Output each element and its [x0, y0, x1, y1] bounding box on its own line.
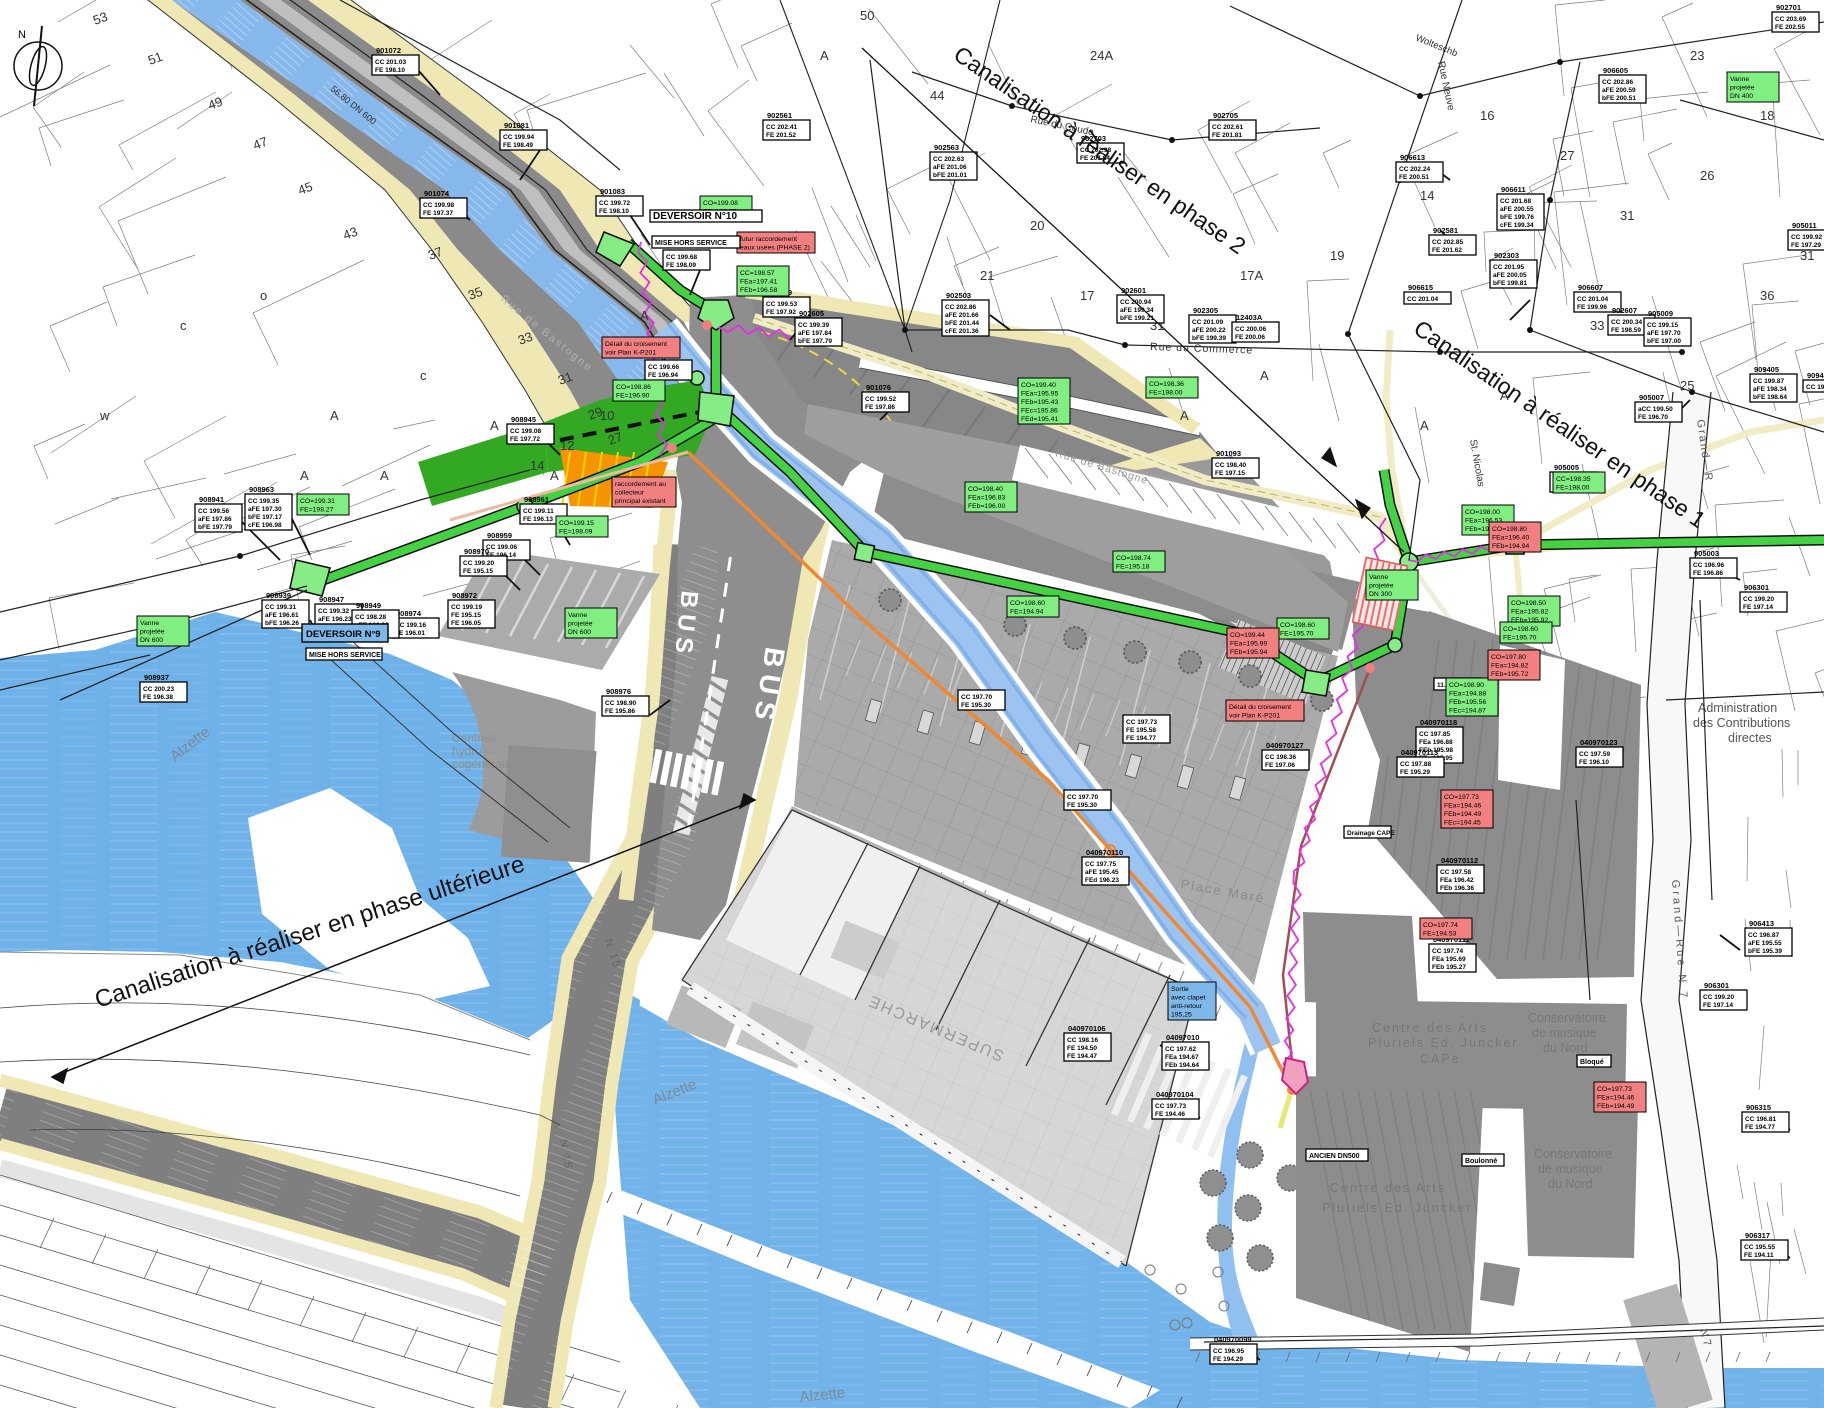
- svg-text:16: 16: [1480, 108, 1494, 123]
- svg-text:anti-retour: anti-retour: [1171, 1003, 1203, 1010]
- svg-text:CO=198.80: CO=198.80: [1492, 526, 1527, 533]
- svg-text:du Nord: du Nord: [1548, 1177, 1593, 1191]
- svg-text:905005: 905005: [1554, 463, 1579, 472]
- svg-text:FEb=196.00: FEb=196.00: [968, 503, 1005, 510]
- svg-text:bFE 195.39: bFE 195.39: [1748, 948, 1782, 955]
- svg-text:CC 199.92: CC 199.92: [1791, 234, 1822, 241]
- svg-text:Conservatoire: Conservatoire: [1534, 1147, 1612, 1161]
- svg-text:cFE 199.34: cFE 199.34: [1500, 222, 1534, 229]
- svg-text:CC 199.52: CC 199.52: [865, 396, 896, 403]
- svg-text:A: A: [490, 418, 499, 433]
- svg-text:040970123: 040970123: [1580, 738, 1618, 747]
- svg-text:50: 50: [860, 8, 874, 23]
- svg-text:FEb 195.27: FEb 195.27: [1432, 964, 1466, 971]
- svg-text:A: A: [380, 468, 389, 483]
- svg-text:CC 196.95: CC 196.95: [1213, 1348, 1244, 1355]
- svg-text:projetée: projetée: [1730, 85, 1755, 92]
- svg-text:CC 202.86: CC 202.86: [945, 304, 976, 311]
- svg-text:CO=198.90: CO=198.90: [1449, 682, 1484, 689]
- svg-text:906607: 906607: [1578, 283, 1603, 292]
- svg-text:CO=198.50: CO=198.50: [1511, 600, 1546, 607]
- svg-text:FEa=194.46: FEa=194.46: [1444, 803, 1481, 810]
- svg-text:FE=194.53: FE=194.53: [1423, 931, 1457, 938]
- svg-text:des Contributions: des Contributions: [1693, 716, 1790, 730]
- svg-text:CC 197.73: CC 197.73: [1126, 719, 1157, 726]
- svg-text:CC 199.87: CC 199.87: [1753, 378, 1784, 385]
- svg-text:908949: 908949: [356, 601, 381, 610]
- svg-text:CO=199.31: CO=199.31: [300, 498, 335, 505]
- svg-text:906301: 906301: [1704, 981, 1729, 990]
- svg-text:908963: 908963: [249, 485, 274, 494]
- svg-text:CC 199.72: CC 199.72: [599, 200, 630, 207]
- svg-text:908959: 908959: [487, 531, 512, 540]
- svg-text:bFE 200.51: bFE 200.51: [1602, 95, 1636, 102]
- svg-text:FEd=195.41: FEd=195.41: [1021, 416, 1058, 423]
- svg-text:FE 194.47: FE 194.47: [1067, 1053, 1097, 1060]
- svg-text:CO=198.60: CO=198.60: [1280, 622, 1315, 629]
- svg-text:906315: 906315: [1746, 1103, 1771, 1112]
- svg-text:aFE 195.55: aFE 195.55: [1748, 940, 1782, 947]
- svg-text:CC 195.55: CC 195.55: [1744, 1244, 1775, 1251]
- svg-text:Vanne: Vanne: [1369, 574, 1388, 581]
- svg-text:24A: 24A: [1090, 48, 1113, 63]
- svg-text:FE 202.55: FE 202.55: [1775, 24, 1805, 31]
- svg-text:bFE 199.81: bFE 199.81: [1493, 280, 1527, 287]
- svg-text:FE 194.77: FE 194.77: [1745, 1124, 1775, 1131]
- svg-text:avec clapet: avec clapet: [1171, 995, 1205, 1002]
- svg-text:902705: 902705: [1213, 111, 1238, 120]
- svg-text:CC 197.75: CC 197.75: [1085, 861, 1116, 868]
- svg-text:FE 197.37: FE 197.37: [423, 210, 453, 217]
- svg-text:04097010: 04097010: [1166, 1033, 1199, 1042]
- svg-text:FE 197.15: FE 197.15: [1215, 470, 1245, 477]
- svg-text:906611: 906611: [1501, 185, 1526, 194]
- svg-text:FE 201.81: FE 201.81: [1212, 132, 1242, 139]
- svg-text:FE 197.29: FE 197.29: [1791, 242, 1821, 249]
- svg-text:c: c: [420, 368, 427, 383]
- svg-text:17A: 17A: [1240, 268, 1263, 283]
- svg-text:FE 194.11: FE 194.11: [1744, 1252, 1774, 1259]
- svg-text:195,25: 195,25: [1171, 1012, 1192, 1019]
- svg-text:12: 12: [560, 438, 574, 453]
- svg-text:FEc=194.45: FEc=194.45: [1444, 820, 1481, 827]
- svg-text:27: 27: [1560, 148, 1574, 163]
- svg-text:CC 199.20: CC 199.20: [1743, 596, 1774, 603]
- svg-text:CC 201.95: CC 201.95: [1493, 264, 1524, 271]
- svg-text:aFE 197.86: aFE 197.86: [198, 516, 232, 523]
- svg-text:bFE 197.17: bFE 197.17: [248, 514, 282, 521]
- svg-text:908961: 908961: [524, 495, 549, 504]
- svg-text:CC 197.85: CC 197.85: [1419, 731, 1450, 738]
- svg-text:de musique: de musique: [1538, 1162, 1603, 1176]
- svg-text:FEb=194.49: FEb=194.49: [1444, 811, 1481, 818]
- svg-text:FE 195.86: FE 195.86: [605, 708, 635, 715]
- svg-text:14: 14: [530, 458, 544, 473]
- svg-text:FEb=195.72: FEb=195.72: [1491, 671, 1528, 678]
- svg-text:CC 199.98: CC 199.98: [423, 202, 454, 209]
- svg-text:cFE 196.98: cFE 196.98: [248, 522, 282, 529]
- svg-text:A: A: [1260, 368, 1269, 383]
- svg-text:901093: 901093: [1216, 449, 1241, 458]
- svg-text:CC 197.73: CC 197.73: [1155, 1103, 1186, 1110]
- svg-text:FE=195.70: FE=195.70: [1503, 635, 1537, 642]
- svg-text:040970118: 040970118: [1420, 718, 1457, 727]
- svg-text:901083: 901083: [600, 187, 625, 196]
- svg-text:906613: 906613: [1400, 153, 1425, 162]
- svg-text:bFE 201.01: bFE 201.01: [933, 172, 967, 179]
- svg-text:21: 21: [980, 268, 994, 283]
- svg-text:CC 199.56: CC 199.56: [198, 508, 229, 515]
- svg-text:FE=198.00: FE=198.00: [1556, 485, 1590, 492]
- svg-text:raccordement au: raccordement au: [615, 481, 666, 488]
- svg-text:FE 194.46: FE 194.46: [1155, 1111, 1185, 1118]
- svg-text:908937: 908937: [144, 673, 169, 682]
- svg-text:908972: 908972: [452, 591, 477, 600]
- svg-text:bFE 199.76: bFE 199.76: [1500, 214, 1534, 221]
- svg-text:FEa=195.95: FEa=195.95: [1021, 391, 1058, 398]
- svg-text:26: 26: [1700, 168, 1714, 183]
- svg-text:FE 200.51: FE 200.51: [1399, 174, 1429, 181]
- svg-text:908974: 908974: [396, 609, 422, 618]
- svg-text:FE 196.86: FE 196.86: [1693, 570, 1723, 577]
- svg-text:FEa=195.99: FEa=195.99: [1230, 641, 1267, 648]
- svg-text:CC 197.88: CC 197.88: [1400, 761, 1431, 768]
- svg-text:CO=199.40: CO=199.40: [1021, 382, 1056, 389]
- svg-text:aFE 200.55: aFE 200.55: [1500, 206, 1534, 213]
- svg-text:CC 199.20: CC 199.20: [1703, 994, 1734, 1001]
- svg-text:CC 197.59: CC 197.59: [1579, 751, 1610, 758]
- svg-text:23: 23: [1690, 48, 1704, 63]
- svg-text:908947: 908947: [319, 595, 344, 604]
- svg-text:908970: 908970: [464, 547, 489, 556]
- svg-text:909405: 909405: [1754, 365, 1779, 374]
- svg-text:voir Plan K-P201: voir Plan K-P201: [1229, 713, 1280, 720]
- svg-text:N: N: [18, 29, 26, 41]
- svg-text:FE 198.59: FE 198.59: [1611, 327, 1641, 334]
- svg-text:901081: 901081: [504, 121, 529, 130]
- svg-text:CO=197.73: CO=197.73: [1444, 794, 1479, 801]
- svg-text:aFE 196.23: aFE 196.23: [318, 616, 352, 623]
- svg-text:040970106: 040970106: [1068, 1024, 1106, 1033]
- svg-text:902701: 902701: [1776, 3, 1801, 12]
- svg-text:aFE 197.70: aFE 197.70: [1647, 330, 1681, 337]
- svg-text:FE 196.38: FE 196.38: [143, 694, 173, 701]
- svg-text:FEb 196.36: FEb 196.36: [1440, 885, 1474, 892]
- svg-text:CC 199.11: CC 199.11: [523, 508, 554, 515]
- svg-text:FE 199.96: FE 199.96: [1577, 304, 1607, 311]
- svg-text:908939: 908939: [266, 591, 291, 600]
- svg-text:CC 201.09: CC 201.09: [1192, 319, 1223, 326]
- svg-text:FEb=194.49: FEb=194.49: [1597, 1103, 1634, 1110]
- svg-text:Bloqué: Bloqué: [1580, 1059, 1604, 1066]
- svg-text:040970112: 040970112: [1441, 856, 1478, 865]
- svg-text:aFE 201.06: aFE 201.06: [933, 164, 967, 171]
- svg-text:FEc=195.86: FEc=195.86: [1021, 408, 1058, 415]
- svg-text:CC 199.15: CC 199.15: [1647, 322, 1678, 329]
- svg-text:CC 199.19: CC 199.19: [451, 604, 482, 611]
- svg-text:CAPe: CAPe: [1420, 1052, 1461, 1066]
- svg-text:FE 198.09: FE 198.09: [666, 262, 696, 269]
- svg-text:18: 18: [1760, 108, 1774, 123]
- svg-text:905009: 905009: [1648, 309, 1673, 318]
- svg-text:A: A: [1420, 418, 1429, 433]
- svg-text:Drainage CAPE: Drainage CAPE: [1347, 830, 1395, 837]
- svg-text:CO=199.44: CO=199.44: [1230, 632, 1265, 639]
- svg-text:FEa=196.83: FEa=196.83: [968, 495, 1005, 502]
- svg-text:FE 197.14: FE 197.14: [1703, 1002, 1733, 1009]
- svg-text:aFE 201.66: aFE 201.66: [945, 312, 979, 319]
- svg-text:bFE 197.79: bFE 197.79: [198, 524, 232, 531]
- svg-text:33: 33: [1590, 318, 1604, 333]
- svg-text:CC 197.58: CC 197.58: [1440, 869, 1471, 876]
- svg-text:FE 198.10: FE 198.10: [599, 208, 629, 215]
- svg-text:FE 195.15: FE 195.15: [451, 612, 481, 619]
- svg-text:CC 199.66: CC 199.66: [648, 364, 679, 371]
- svg-text:FEb=194.94: FEb=194.94: [1492, 543, 1529, 550]
- svg-text:040970127: 040970127: [1266, 741, 1304, 750]
- svg-text:bFE 198.64: bFE 198.64: [1753, 394, 1787, 401]
- svg-text:cogénération: cogénération: [452, 757, 521, 771]
- svg-text:aFE 198.34: aFE 198.34: [1753, 386, 1787, 393]
- svg-text:A: A: [550, 468, 559, 483]
- svg-text:FE=194.94: FE=194.94: [1010, 609, 1044, 616]
- svg-text:FE=198.00: FE=198.00: [1149, 390, 1183, 397]
- svg-text:FEb=195.56: FEb=195.56: [1449, 699, 1486, 706]
- svg-text:CC 199.20: CC 199.20: [463, 560, 494, 567]
- svg-text:DN 400: DN 400: [1730, 93, 1753, 100]
- svg-text:CC 201.03: CC 201.03: [375, 59, 406, 66]
- svg-text:CC 201.68: CC 201.68: [1500, 198, 1531, 205]
- svg-text:902561: 902561: [767, 111, 792, 120]
- svg-text:905003: 905003: [1694, 549, 1719, 558]
- svg-text:MISE HORS SERVICE: MISE HORS SERVICE: [309, 652, 381, 659]
- svg-text:FEa 194.67: FEa 194.67: [1165, 1054, 1199, 1061]
- svg-text:902303: 902303: [1494, 251, 1519, 260]
- svg-text:CC 199.06: CC 199.06: [486, 544, 517, 551]
- svg-text:FEa=195.82: FEa=195.82: [1511, 609, 1548, 616]
- svg-text:bFE 199.21: bFE 199.21: [1120, 315, 1154, 322]
- svg-text:906317: 906317: [1745, 1231, 1770, 1240]
- svg-text:902601: 902601: [1121, 286, 1146, 295]
- svg-text:FEc=194.87: FEc=194.87: [1449, 708, 1486, 715]
- svg-text:FEb=195.43: FEb=195.43: [1021, 399, 1058, 406]
- svg-text:projetée: projetée: [140, 629, 165, 636]
- svg-text:CC 203.69: CC 203.69: [1775, 16, 1806, 23]
- svg-text:20: 20: [1030, 218, 1044, 233]
- svg-text:CC 196.87: CC 196.87: [1748, 932, 1779, 939]
- svg-text:Détail du croisement: Détail du croisement: [1229, 704, 1291, 711]
- svg-text:FE 197.06: FE 197.06: [1265, 762, 1295, 769]
- svg-text:projetée: projetée: [1369, 583, 1394, 590]
- svg-text:bFE 197.79: bFE 197.79: [798, 338, 832, 345]
- svg-text:908976: 908976: [606, 687, 631, 696]
- svg-text:aFE 197.30: aFE 197.30: [248, 506, 282, 513]
- svg-text:CO=198.60: CO=198.60: [1503, 626, 1538, 633]
- svg-text:DEVERSOIR N°9: DEVERSOIR N°9: [306, 629, 381, 640]
- svg-text:CO=198.36: CO=198.36: [1149, 381, 1184, 388]
- svg-text:FEa 196.88: FEa 196.88: [1419, 739, 1453, 746]
- svg-text:Centre des Arts: Centre des Arts: [1330, 1181, 1446, 1195]
- svg-text:906301: 906301: [1744, 583, 1769, 592]
- svg-text:CC 199.39: CC 199.39: [798, 322, 829, 329]
- svg-text:A: A: [300, 468, 309, 483]
- svg-text:A: A: [820, 48, 829, 63]
- svg-text:14: 14: [1420, 188, 1434, 203]
- svg-text:Détail du croisement: Détail du croisement: [605, 341, 667, 348]
- svg-text:FE 195.58: FE 195.58: [1126, 727, 1156, 734]
- svg-text:FEd 196.23: FEd 196.23: [1085, 877, 1119, 884]
- svg-text:collecteur: collecteur: [615, 490, 645, 497]
- svg-text:19: 19: [1330, 248, 1344, 263]
- svg-text:FE 195.29: FE 195.29: [1400, 769, 1430, 776]
- svg-text:FE 201.62: FE 201.62: [1432, 247, 1462, 254]
- svg-text:FE 197.92: FE 197.92: [766, 309, 796, 316]
- svg-text:906615: 906615: [1408, 283, 1433, 292]
- svg-text:CC 200.06: CC 200.06: [1235, 326, 1266, 333]
- svg-text:Vanne: Vanne: [1730, 76, 1749, 83]
- svg-text:CC 199.31: CC 199.31: [265, 604, 296, 611]
- svg-text:directes: directes: [1728, 731, 1772, 745]
- svg-text:902607: 902607: [1612, 306, 1637, 315]
- svg-text:FE 194.29: FE 194.29: [1213, 1356, 1243, 1363]
- svg-text:040970104: 040970104: [1156, 1090, 1194, 1099]
- svg-text:FEa=196.40: FEa=196.40: [1492, 535, 1529, 542]
- svg-text:FE 194.50: FE 194.50: [1067, 1045, 1097, 1052]
- svg-text:CC 202.61: CC 202.61: [1212, 124, 1243, 131]
- svg-text:908945: 908945: [511, 415, 536, 424]
- svg-text:A: A: [1180, 408, 1189, 423]
- svg-text:CC 198.40: CC 198.40: [1215, 462, 1246, 469]
- svg-text:CC 202.41: CC 202.41: [766, 124, 797, 131]
- svg-text:906605: 906605: [1603, 66, 1628, 75]
- svg-text:FEa=194.88: FEa=194.88: [1449, 691, 1486, 698]
- svg-text:FE 196.10: FE 196.10: [1579, 759, 1609, 766]
- svg-text:902503: 902503: [946, 291, 971, 300]
- svg-text:FE 197.86: FE 197.86: [865, 404, 895, 411]
- svg-text:FE=198.27: FE=198.27: [300, 507, 334, 514]
- svg-text:hydro—: hydro—: [452, 744, 494, 758]
- svg-text:FEa=197.41: FEa=197.41: [740, 279, 777, 286]
- svg-text:CC 200.34: CC 200.34: [1611, 319, 1642, 326]
- svg-text:DN 300: DN 300: [1369, 591, 1392, 598]
- svg-text:FEb=196.58: FEb=196.58: [740, 287, 777, 294]
- svg-text:CO=198.40: CO=198.40: [968, 486, 1003, 493]
- svg-text:44: 44: [930, 88, 944, 103]
- svg-text:CC 199.8: CC 199.8: [1806, 384, 1824, 391]
- svg-text:aFE 196.61: aFE 196.61: [265, 612, 299, 619]
- svg-text:FE 196.70: FE 196.70: [1638, 414, 1668, 421]
- svg-text:FE 198.49: FE 198.49: [503, 142, 533, 149]
- svg-text:Sortie: Sortie: [1171, 986, 1189, 993]
- svg-text:17: 17: [1080, 288, 1094, 303]
- svg-text:FE 200.06: FE 200.06: [1235, 334, 1265, 341]
- svg-text:908941: 908941: [199, 495, 224, 504]
- svg-text:du Nord: du Nord: [1543, 1041, 1588, 1055]
- svg-text:CO=199.08: CO=199.08: [703, 200, 738, 207]
- svg-text:CC 199.32: CC 199.32: [318, 608, 349, 615]
- svg-text:FE 196.13: FE 196.13: [523, 516, 553, 523]
- svg-text:FE=195.70: FE=195.70: [1280, 631, 1314, 638]
- svg-text:FEa=194.82: FEa=194.82: [1491, 663, 1528, 670]
- svg-text:aCC 199.50: aCC 199.50: [1638, 406, 1673, 413]
- svg-text:25: 25: [1680, 378, 1694, 393]
- svg-text:aFE 200.59: aFE 200.59: [1602, 87, 1636, 94]
- svg-text:FE 195.30: FE 195.30: [961, 702, 991, 709]
- svg-text:CC 201.04: CC 201.04: [1407, 296, 1438, 303]
- svg-text:aFE 200.22: aFE 200.22: [1192, 327, 1226, 334]
- svg-text:906413: 906413: [1749, 919, 1774, 928]
- svg-text:CC 199.53: CC 199.53: [766, 301, 797, 308]
- svg-text:FE 196.05: FE 196.05: [451, 620, 481, 627]
- svg-text:CC=198.57: CC=198.57: [740, 270, 775, 277]
- svg-text:FE=195.18: FE=195.18: [1116, 564, 1150, 571]
- svg-text:FE 195.15: FE 195.15: [463, 568, 493, 575]
- svg-text:CC 198.16: CC 198.16: [1067, 1037, 1098, 1044]
- svg-text:CC 197.70: CC 197.70: [1067, 794, 1098, 801]
- svg-text:Centre des Arts: Centre des Arts: [1372, 1021, 1488, 1035]
- svg-text:Conservatoire: Conservatoire: [1528, 1011, 1606, 1025]
- svg-text:901072: 901072: [376, 46, 401, 55]
- svg-text:cFE 201.36: cFE 201.36: [945, 328, 979, 335]
- svg-text:CO=197.74: CO=197.74: [1423, 922, 1458, 929]
- svg-text:principal existant: principal existant: [615, 498, 666, 505]
- svg-text:Vanne: Vanne: [568, 612, 587, 619]
- svg-text:FE 196.94: FE 196.94: [648, 372, 678, 379]
- svg-text:CO=199.15: CO=199.15: [559, 520, 594, 527]
- svg-text:CC 199.08: CC 199.08: [510, 428, 541, 435]
- svg-text:DN 600: DN 600: [568, 629, 591, 636]
- svg-text:905011: 905011: [1792, 221, 1817, 230]
- svg-text:eaux usées (PHASE 2): eaux usées (PHASE 2): [740, 245, 810, 252]
- svg-text:aFE 195.45: aFE 195.45: [1085, 869, 1119, 876]
- svg-text:CC 202.24: CC 202.24: [1399, 166, 1430, 173]
- svg-text:CC 197.74: CC 197.74: [1432, 948, 1463, 955]
- svg-text:FE 197.14: FE 197.14: [1743, 604, 1773, 611]
- svg-text:MISE HORS SERVICE: MISE HORS SERVICE: [655, 240, 727, 247]
- svg-text:FE 195.30: FE 195.30: [1067, 802, 1097, 809]
- svg-text:CC=198.35: CC=198.35: [1556, 476, 1591, 483]
- svg-text:CO=198.60: CO=198.60: [1010, 600, 1045, 607]
- svg-text:040970110: 040970110: [1086, 848, 1123, 857]
- svg-text:CC 200.23: CC 200.23: [143, 686, 174, 693]
- svg-text:CC 199.16: CC 199.16: [395, 622, 426, 629]
- svg-text:aFE 199.34: aFE 199.34: [1120, 307, 1154, 314]
- svg-text:CC 198.28: CC 198.28: [355, 614, 386, 621]
- svg-text:040970099: 040970099: [1214, 1335, 1252, 1344]
- svg-text:futur raccordement: futur raccordement: [740, 236, 797, 243]
- svg-text:902581: 902581: [1433, 226, 1458, 235]
- svg-text:FEa=194.46: FEa=194.46: [1597, 1095, 1634, 1102]
- svg-text:31: 31: [1620, 208, 1634, 223]
- svg-text:bFE 196.26: bFE 196.26: [265, 620, 299, 627]
- svg-text:040970113: 040970113: [1401, 748, 1438, 757]
- svg-text:905007: 905007: [1639, 393, 1664, 402]
- svg-text:A: A: [640, 308, 649, 323]
- svg-text:voir Plan K-P201: voir Plan K-P201: [605, 350, 656, 357]
- svg-text:CC 199.35: CC 199.35: [248, 498, 279, 505]
- svg-text:CC 197.62: CC 197.62: [1165, 1046, 1196, 1053]
- svg-text:de musique: de musique: [1532, 1026, 1597, 1040]
- svg-text:o: o: [260, 288, 267, 303]
- svg-text:CC 198.36: CC 198.36: [1265, 754, 1296, 761]
- svg-text:909405b: 909405b: [1807, 371, 1824, 380]
- svg-text:CC 199.94: CC 199.94: [503, 134, 534, 141]
- svg-text:CC 202.86: CC 202.86: [1602, 79, 1633, 86]
- svg-text:DN 600: DN 600: [140, 637, 163, 644]
- svg-text:901074: 901074: [424, 189, 450, 198]
- svg-text:FE=196.90: FE=196.90: [616, 393, 650, 400]
- svg-text:Pluriels Ed. Juncker: Pluriels Ed. Juncker: [1368, 1036, 1518, 1050]
